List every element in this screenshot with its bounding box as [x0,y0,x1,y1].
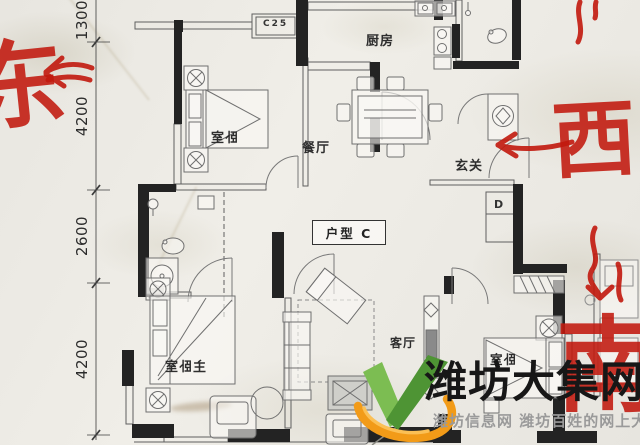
watermark-title: 潍坊大集网 [424,362,640,405]
floor-plan-photo: 1300 4200 2600 4200 卧室 厨房 餐厅 玄关 客厅 主卧室 卧… [0,0,640,445]
watermark-subtitle: 潍坊信息网 潍坊百姓的网上大集 [433,410,640,431]
